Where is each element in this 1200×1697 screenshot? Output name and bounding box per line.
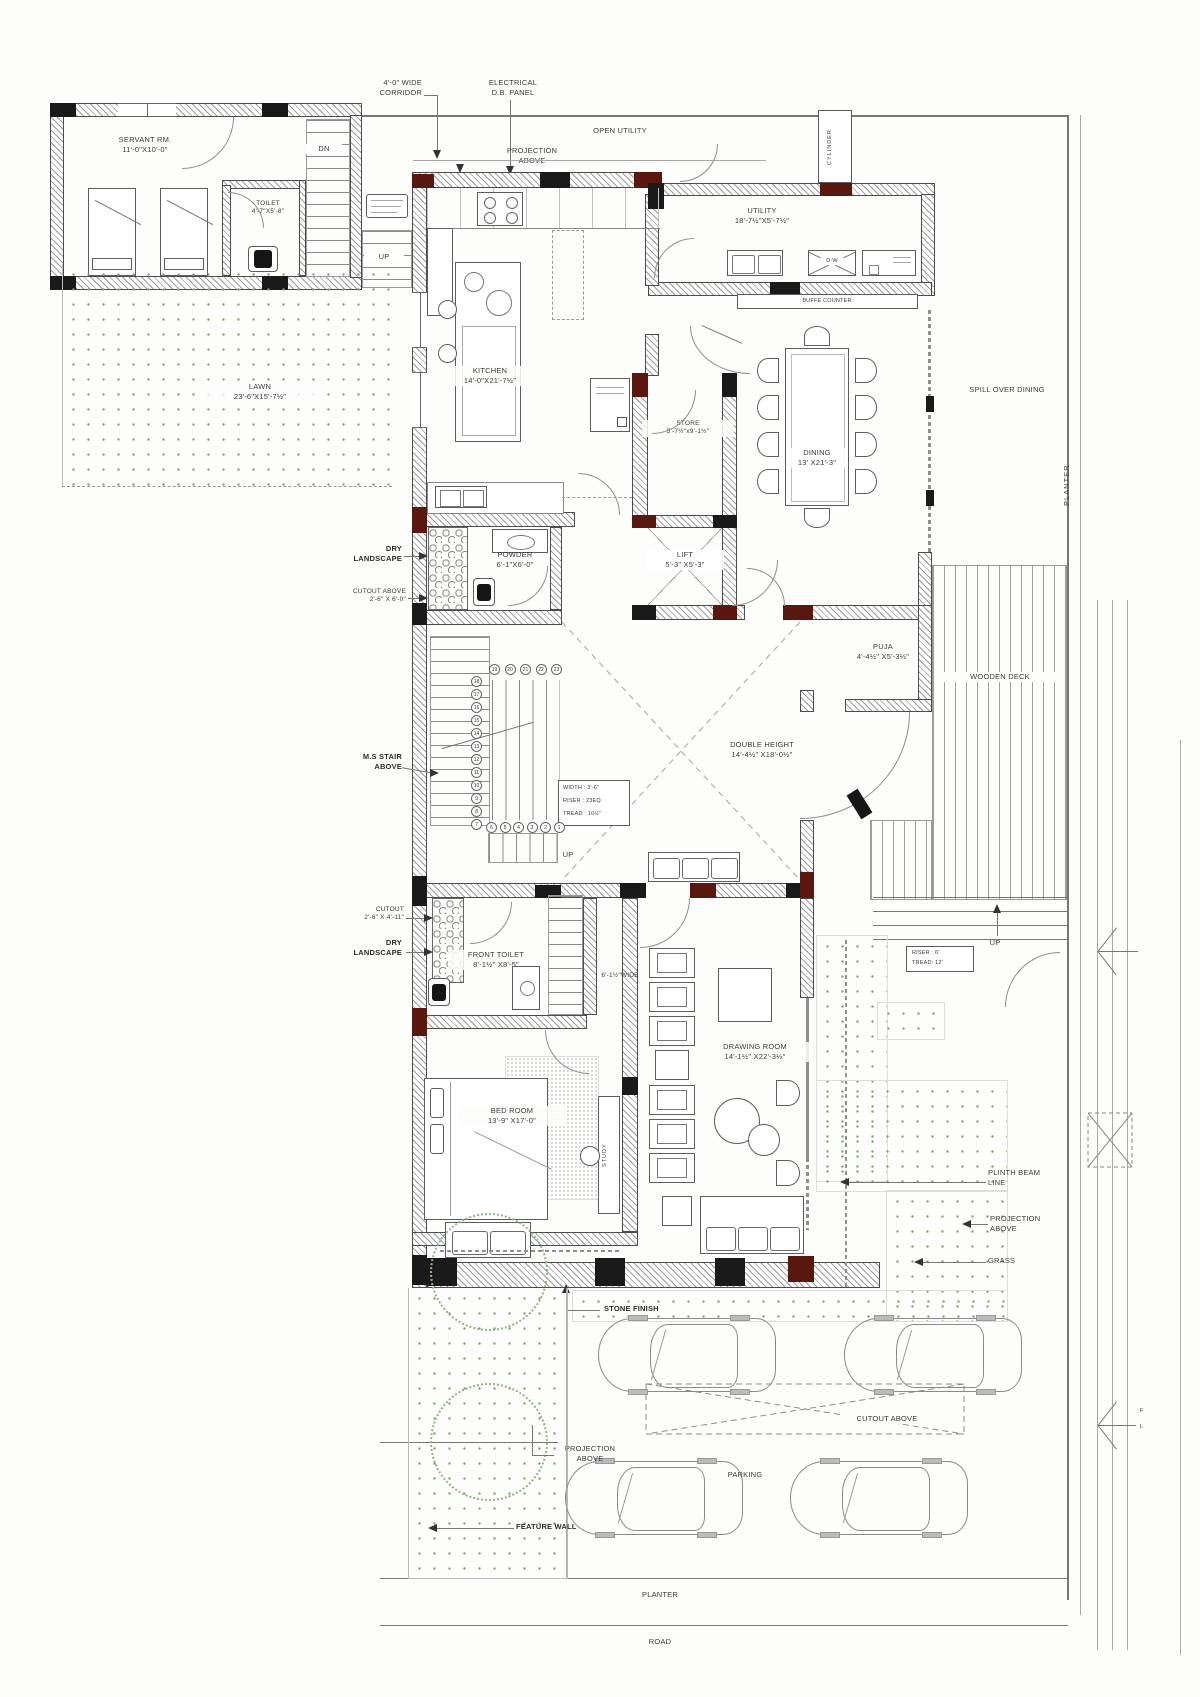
- island-stool: [438, 344, 457, 363]
- cylinder-shaft: [818, 110, 852, 183]
- bed-headboard-line: [450, 1082, 451, 1216]
- passage-width-label: 6'-1½"WIDE: [588, 972, 652, 980]
- bench-sofa: [648, 852, 740, 882]
- accent-chair: [776, 1160, 800, 1186]
- window: [118, 103, 176, 117]
- wc-seat: [432, 984, 446, 1001]
- wall-segment: [583, 898, 597, 1015]
- armchair: [649, 982, 695, 1012]
- wall-puja-bottom: [845, 699, 932, 712]
- leader-line: [436, 1528, 514, 1529]
- wall-powder-top: [412, 512, 575, 527]
- ms-stair-annotation: M.S STAIRABOVE: [322, 752, 402, 772]
- armchair: [649, 1085, 695, 1115]
- dining-chair: [757, 432, 779, 457]
- leader-arrow: [840, 1178, 849, 1186]
- entry-stair-schedule-box: RISER : 6' TREAD: 12': [906, 946, 974, 972]
- leader-arrow: [419, 594, 428, 602]
- lawn-label: LAWN23'-6"X15'-7½": [205, 382, 315, 402]
- leader-line: [406, 952, 426, 953]
- leader-arrow: [424, 914, 433, 922]
- kitchen-label: KITCHEN14'-0"X21'-7½": [438, 366, 542, 386]
- cooktop: [477, 192, 523, 226]
- grass-annotation: GRASS: [988, 1256, 1040, 1266]
- island-sink-bowl: [464, 272, 484, 292]
- dining-chair: [855, 469, 877, 494]
- road-arrow: [1098, 928, 1117, 952]
- main-staircase-bottom: [488, 833, 558, 863]
- up-label: UP: [978, 938, 1012, 948]
- utility-cabinet: [862, 250, 916, 276]
- site-boundary-top: [352, 115, 1067, 117]
- wall-segment: [645, 334, 659, 376]
- stair-step-number: 20: [505, 664, 516, 675]
- wall-toilet-top: [412, 883, 634, 898]
- wall-drawing-right: [800, 898, 814, 998]
- tree: [430, 1213, 548, 1331]
- kitchen-counter-top: [427, 188, 660, 229]
- up-label: UP: [364, 252, 404, 262]
- grass-area: [877, 1002, 945, 1040]
- island-basin: [486, 290, 512, 316]
- column-block: [412, 876, 427, 906]
- leader-line: [922, 1262, 986, 1263]
- leader-line: [404, 556, 420, 557]
- wall-segment: [800, 690, 814, 712]
- cutout-above-parking-label: CUTOUT ABOVE: [842, 1414, 932, 1424]
- window: [412, 372, 427, 428]
- column-block: [713, 515, 737, 528]
- door-arc: [640, 898, 690, 948]
- column-block: [783, 605, 813, 620]
- stair-step-number: 3: [527, 822, 538, 833]
- dining-table-inner: [791, 354, 845, 502]
- corridor-annotation: 4'-0" WIDECORRIDOR: [336, 78, 422, 98]
- floor-plan: PLANTER F L PLANTER ROAD SERVANT RM.11'-…: [0, 0, 1200, 1697]
- center-table: [718, 968, 772, 1022]
- wall-segment: [350, 115, 362, 278]
- dry-landscape-pebbles: [428, 527, 468, 610]
- kitchen-tall-unit-dashed: [552, 230, 584, 320]
- sofa-three-seater: [700, 1196, 804, 1254]
- stair-step-number: 12: [471, 754, 482, 765]
- dining-chair: [855, 395, 877, 420]
- window: [412, 292, 427, 348]
- pouf: [748, 1124, 780, 1156]
- parking-edge-line: [566, 1288, 567, 1578]
- column-block: [412, 1255, 427, 1285]
- stair-step-number: 7: [471, 819, 482, 830]
- column-block: [820, 183, 852, 196]
- stair-step-number: 1: [554, 822, 565, 833]
- stone-finish-annotation: STONE FINISH: [604, 1304, 690, 1314]
- wall-segment: [918, 552, 932, 607]
- wall-utility-top: [648, 183, 935, 196]
- stair-step-number: 15: [471, 715, 482, 726]
- column-block: [713, 605, 737, 620]
- car: [790, 1461, 968, 1535]
- fl-marker: F: [1140, 1408, 1152, 1415]
- wooden-deck: [870, 820, 932, 900]
- car: [598, 1318, 776, 1392]
- wc-seat: [477, 584, 491, 601]
- column-block: [412, 174, 434, 188]
- main-staircase-return: [492, 680, 560, 820]
- wall-segment: [222, 180, 306, 189]
- stair-step-number: 14: [471, 728, 482, 739]
- leader-arrow: [419, 552, 428, 560]
- dining-chair: [757, 358, 779, 383]
- door-arc: [747, 568, 785, 606]
- electrical-panel-annotation: ELECTRICALD.B. PANEL: [478, 78, 548, 98]
- dining-chair: [757, 469, 779, 494]
- column-block: [540, 172, 570, 188]
- stair-step-number: 19: [489, 664, 500, 675]
- column-block: [926, 490, 934, 506]
- road-arrow: [1098, 951, 1117, 975]
- accent-chair: [776, 1080, 800, 1106]
- wall-segment: [50, 103, 362, 117]
- leader-line: [532, 1455, 554, 1456]
- leader-arrow: [962, 1220, 971, 1228]
- up-arrow-head: [993, 904, 1001, 913]
- refrigerator: [590, 378, 630, 432]
- gate-arc: [1005, 952, 1060, 1007]
- spill-over-dining-label: SPILL OVER DINING: [948, 385, 1066, 395]
- column-block: [412, 507, 427, 533]
- corner-table: [662, 1196, 692, 1226]
- road-line: [1180, 740, 1181, 1655]
- armchair: [649, 1119, 695, 1149]
- column-block: [262, 103, 288, 117]
- kitchen-sink: [435, 486, 487, 508]
- road-line: [1080, 115, 1081, 1615]
- door-arc: [470, 902, 512, 944]
- wall-bed-drawing-divider: [622, 898, 638, 1232]
- dn-staircase: [306, 119, 350, 277]
- planter-right-label: PLANTER: [1062, 445, 1072, 525]
- wall-toilet-bottom: [412, 1015, 587, 1029]
- feature-wall-annotation: FEATURE WALL: [516, 1522, 600, 1532]
- stair-step-number: 21: [520, 664, 531, 675]
- cutout-annotation: CUTOUT2'-6" X 4'-11": [342, 906, 404, 923]
- column-block: [788, 1256, 814, 1282]
- entry-step: [873, 897, 1067, 898]
- column-block: [715, 1258, 745, 1286]
- projection-above-annotation: PROJECTIONABOVE: [496, 146, 568, 166]
- gate-post-marker: [1087, 1112, 1133, 1168]
- leader-line: [566, 1310, 600, 1311]
- leader-line: [532, 1425, 533, 1455]
- dry-landscape-annotation: DRYLANDSCAPE: [318, 938, 402, 958]
- door-arc: [578, 473, 620, 515]
- fl-marker: L: [1140, 1424, 1152, 1431]
- entry-step: [873, 925, 1067, 926]
- stair-step-number: 10: [471, 780, 482, 791]
- utility-label: UTILITY18'-7½"X5'-7½": [712, 206, 812, 226]
- column-block: [412, 1008, 427, 1036]
- stair-step-number: 5: [500, 822, 511, 833]
- utility-sink: [727, 250, 783, 276]
- leader-arrow: [424, 948, 433, 956]
- bedroom-label: BED ROOM13'-9" X17'-0": [458, 1106, 566, 1126]
- road-arrow: [1098, 1425, 1136, 1426]
- dining-chair: [757, 395, 779, 420]
- door-arc: [508, 566, 548, 606]
- shower-tray: [512, 966, 540, 1010]
- dishwasher-label: D-W: [816, 258, 848, 265]
- column-block: [632, 605, 656, 620]
- projection-above-annotation: PROJECTIONABOVE: [990, 1214, 1068, 1234]
- wall-segment: [299, 180, 306, 276]
- glass-wavy-wall: [806, 1158, 809, 1230]
- column-block: [722, 373, 737, 397]
- grass-area: [816, 1080, 1008, 1192]
- column-block: [622, 1077, 638, 1095]
- dining-chair: [855, 358, 877, 383]
- dn-label: DN: [306, 144, 342, 154]
- puja-label: PUJA4'-4½" X5'-3½": [845, 642, 921, 662]
- stair-step-number: 2: [540, 822, 551, 833]
- stair-step-number: 4: [513, 822, 524, 833]
- road-arrow: [1098, 1425, 1117, 1449]
- up-label: UP: [550, 850, 586, 860]
- door-arc: [182, 117, 234, 169]
- column-block: [800, 872, 814, 898]
- column-block: [690, 883, 716, 898]
- buffet-counter-label: BUFFE COUNTER: [747, 298, 907, 305]
- drawing-room-label: DRAWING ROOM14'-1½" X22'-3½": [696, 1042, 814, 1062]
- island-stool: [438, 300, 457, 319]
- leader-arrow: [433, 150, 441, 159]
- wooden-deck: [932, 565, 1067, 900]
- open-utility-label: OPEN UTILITY: [572, 126, 668, 136]
- study-label: STUDY: [602, 1128, 609, 1182]
- bed-pillow: [430, 1124, 444, 1154]
- column-block: [595, 1258, 625, 1286]
- column-block: [412, 603, 427, 625]
- column-block: [632, 515, 656, 528]
- road-arrow: [1098, 1402, 1117, 1426]
- lift-label: LIFT5'-3" X5'-3": [646, 550, 724, 570]
- parking-label: PARKING: [712, 1470, 778, 1480]
- dining-chair: [855, 432, 877, 457]
- stair-step-number: 9: [471, 793, 482, 804]
- column-block: [926, 396, 934, 412]
- wall-segment: [50, 115, 64, 278]
- window-wall: [806, 998, 809, 1158]
- column-block: [620, 883, 646, 898]
- stair-step-number: 13: [471, 741, 482, 752]
- wooden-deck-label: WOODEN DECK: [938, 672, 1062, 682]
- bed-pillow: [430, 1088, 444, 1118]
- door-arc: [654, 238, 694, 278]
- stair-step-number: 18: [471, 676, 482, 687]
- stair-step-number: 8: [471, 806, 482, 817]
- leader-line: [848, 1182, 986, 1183]
- stair-step-number: 6: [486, 822, 497, 833]
- door-arc: [680, 144, 718, 182]
- dry-landscape-annotation: DRYLANDSCAPE: [318, 544, 402, 564]
- lawn-area: [62, 264, 393, 486]
- leader-line: [437, 95, 438, 150]
- side-table: [655, 1050, 689, 1080]
- road-label: ROAD: [628, 1637, 692, 1647]
- armchair: [649, 948, 695, 978]
- planter-strip-bottom: [380, 1625, 1068, 1626]
- entry-staircase: [548, 895, 583, 1015]
- stair-step-number: 23: [551, 664, 562, 675]
- plinth-beam-annotation: PLINTH BEAMLINE: [988, 1168, 1062, 1188]
- leader-arrow: [914, 1258, 923, 1266]
- entry-step: [873, 939, 1067, 940]
- leader-line: [970, 1224, 988, 1225]
- stair-schedule-box: WIDTH : 3'-6" RISER : 23EQ. TREAD : 10½": [558, 780, 630, 826]
- wall-utility-right: [921, 194, 935, 296]
- tree: [430, 1383, 548, 1501]
- leader-line: [406, 918, 426, 919]
- leader-line: [424, 95, 438, 96]
- armchair: [649, 1016, 695, 1046]
- lawn-edge: [62, 486, 392, 487]
- stair-step-number: 17: [471, 689, 482, 700]
- up-arrow-stem: [997, 912, 998, 936]
- dining-chair: [804, 508, 830, 528]
- leader-arrow: [428, 1524, 437, 1532]
- stair-step-number: 16: [471, 702, 482, 713]
- column-block: [50, 103, 76, 117]
- road-arrow: [1098, 951, 1138, 952]
- stair-step-number: 22: [536, 664, 547, 675]
- cylinder-label: CYLINDER: [827, 116, 834, 178]
- wall-kitchen-top: [412, 172, 662, 188]
- dining-label: DINING13' X21'-3": [786, 448, 848, 468]
- planter-bottom-label: PLANTER: [616, 1590, 704, 1600]
- study-chair: [580, 1146, 600, 1166]
- armchair: [649, 1153, 695, 1183]
- door-arc: [228, 192, 264, 228]
- column-block: [632, 373, 648, 397]
- dry-landscape-pebbles: [432, 898, 464, 983]
- projection-above-annotation: PROJECTIONABOVE: [552, 1444, 628, 1464]
- dining-chair: [804, 326, 830, 346]
- cutout-above-annotation: CUTOUT ABOVE2'-6" X 6'-0": [322, 588, 406, 605]
- stair-step-number: 11: [471, 767, 482, 778]
- glass-wavy-wall: [928, 310, 931, 555]
- leader-arrow: [430, 769, 439, 777]
- entry-step: [873, 911, 1067, 912]
- wall-powder-bottom: [412, 610, 562, 625]
- car: [844, 1318, 1022, 1392]
- site-boundary-right: [1067, 115, 1069, 1600]
- stair-note-box: [366, 194, 408, 218]
